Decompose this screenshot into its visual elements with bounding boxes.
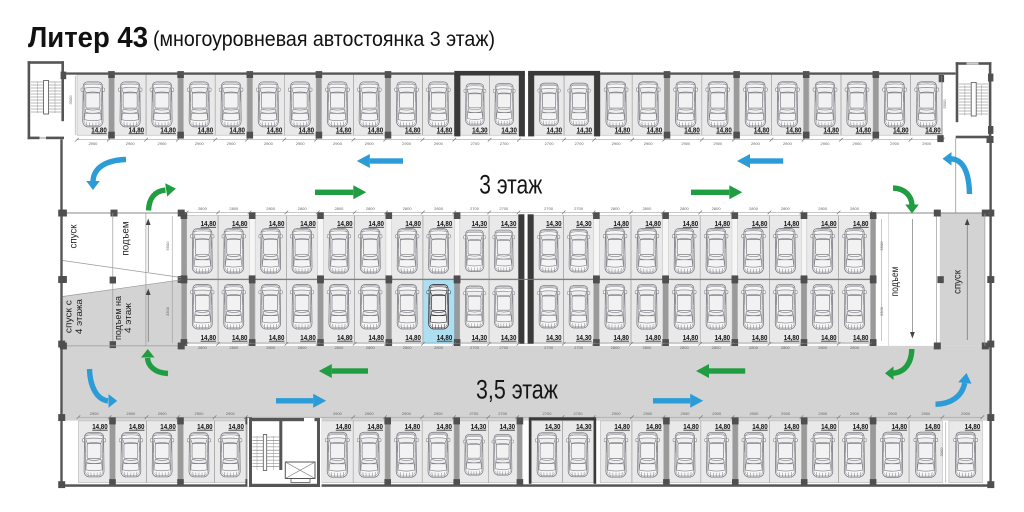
svg-text:14,30: 14,30	[576, 219, 592, 228]
svg-text:2900: 2900	[713, 141, 723, 146]
svg-text:14,80: 14,80	[368, 422, 384, 431]
svg-text:14,80: 14,80	[337, 333, 353, 342]
svg-text:14,80: 14,80	[405, 219, 421, 228]
svg-text:14,30: 14,30	[501, 125, 517, 134]
svg-text:2800: 2800	[818, 345, 828, 350]
svg-text:14,30: 14,30	[472, 219, 488, 228]
svg-text:2700: 2700	[471, 141, 481, 146]
svg-text:14,80: 14,80	[752, 219, 768, 228]
svg-text:2800: 2800	[611, 206, 621, 211]
svg-text:14,80: 14,80	[437, 219, 453, 228]
svg-text:2900: 2900	[333, 411, 343, 416]
svg-text:2900: 2900	[749, 411, 759, 416]
svg-text:14,30: 14,30	[547, 125, 563, 134]
svg-text:14,30: 14,30	[472, 333, 488, 342]
svg-text:14,80: 14,80	[92, 422, 108, 431]
svg-text:14,80: 14,80	[821, 219, 837, 228]
svg-text:2800: 2800	[403, 206, 413, 211]
svg-text:14,80: 14,80	[437, 333, 453, 342]
svg-text:14,30: 14,30	[501, 219, 517, 228]
svg-text:3000: 3000	[68, 95, 73, 105]
svg-text:14,30: 14,30	[546, 333, 562, 342]
svg-text:2800: 2800	[266, 345, 276, 350]
svg-text:2900: 2900	[818, 411, 828, 416]
svg-text:Литер 43: Литер 43	[28, 22, 148, 54]
svg-text:2900: 2900	[195, 141, 205, 146]
svg-text:14,80: 14,80	[269, 333, 285, 342]
svg-text:14,80: 14,80	[853, 219, 869, 228]
svg-text:2900: 2900	[643, 411, 653, 416]
svg-text:2800: 2800	[334, 206, 344, 211]
svg-text:3300: 3300	[165, 306, 170, 316]
svg-text:спуск: спуск	[69, 224, 80, 249]
svg-text:2800: 2800	[680, 206, 690, 211]
svg-text:5500: 5500	[165, 241, 170, 251]
svg-text:14,80: 14,80	[925, 422, 941, 431]
svg-text:2800: 2800	[850, 206, 860, 211]
svg-text:2900: 2900	[612, 411, 622, 416]
svg-text:14,80: 14,80	[784, 219, 800, 228]
svg-text:2700: 2700	[575, 141, 585, 146]
svg-text:14,80: 14,80	[405, 333, 421, 342]
svg-text:2700: 2700	[545, 141, 555, 146]
svg-text:14,80: 14,80	[965, 422, 981, 431]
svg-text:2900: 2900	[158, 411, 168, 416]
svg-text:подъем на: подъем на	[113, 295, 124, 340]
svg-text:14,80: 14,80	[853, 422, 869, 431]
svg-text:2800: 2800	[229, 206, 239, 211]
svg-text:14,80: 14,80	[160, 422, 176, 431]
svg-text:2900: 2900	[126, 141, 136, 146]
svg-text:4 этаж: 4 этаж	[123, 302, 134, 333]
svg-text:2800: 2800	[642, 206, 652, 211]
svg-text:2800: 2800	[298, 206, 308, 211]
svg-text:2900: 2900	[922, 141, 932, 146]
svg-text:14,80: 14,80	[300, 333, 316, 342]
svg-text:2900: 2900	[781, 411, 791, 416]
svg-text:14,80: 14,80	[784, 333, 800, 342]
svg-text:2900: 2900	[195, 411, 205, 416]
svg-text:2800: 2800	[749, 345, 759, 350]
svg-text:14,80: 14,80	[715, 422, 731, 431]
svg-text:2900: 2900	[921, 411, 931, 416]
svg-text:2800: 2800	[434, 345, 444, 350]
svg-text:2700: 2700	[544, 345, 554, 350]
svg-text:2900: 2900	[296, 141, 306, 146]
svg-text:14,80: 14,80	[405, 422, 421, 431]
svg-text:2700: 2700	[499, 206, 509, 211]
svg-text:2900: 2900	[783, 141, 793, 146]
svg-text:2800: 2800	[680, 345, 690, 350]
svg-text:14,30: 14,30	[472, 125, 488, 134]
svg-text:14,80: 14,80	[752, 422, 768, 431]
svg-text:3 этаж: 3 этаж	[479, 170, 542, 200]
svg-text:2900: 2900	[365, 141, 375, 146]
svg-text:2900: 2900	[88, 141, 98, 146]
svg-text:14,30: 14,30	[577, 125, 593, 134]
svg-text:14,30: 14,30	[471, 422, 487, 431]
svg-text:2700: 2700	[499, 345, 509, 350]
svg-text:2800: 2800	[366, 206, 376, 211]
svg-text:2700: 2700	[574, 411, 584, 416]
svg-text:14,30: 14,30	[576, 422, 592, 431]
svg-text:14,30: 14,30	[576, 333, 592, 342]
svg-text:2900: 2900	[850, 411, 860, 416]
svg-text:2700: 2700	[498, 411, 508, 416]
svg-text:14,80: 14,80	[336, 422, 352, 431]
svg-text:14,80: 14,80	[232, 333, 248, 342]
svg-text:2900: 2900	[126, 411, 136, 416]
svg-text:2700: 2700	[574, 206, 584, 211]
svg-text:2800: 2800	[712, 206, 722, 211]
svg-text:14,80: 14,80	[614, 219, 630, 228]
svg-text:2800: 2800	[403, 345, 413, 350]
svg-text:14,80: 14,80	[821, 333, 837, 342]
svg-text:14,30: 14,30	[501, 333, 517, 342]
svg-text:14,80: 14,80	[645, 333, 661, 342]
svg-text:2800: 2800	[611, 345, 621, 350]
svg-text:3000: 3000	[939, 447, 944, 457]
svg-text:2900: 2900	[890, 141, 900, 146]
svg-text:2700: 2700	[544, 206, 554, 211]
svg-text:14,80: 14,80	[752, 333, 768, 342]
svg-text:2800: 2800	[781, 345, 791, 350]
svg-text:5500: 5500	[879, 241, 884, 251]
svg-text:14,80: 14,80	[337, 219, 353, 228]
svg-text:2800: 2800	[366, 345, 376, 350]
svg-text:14,80: 14,80	[228, 422, 244, 431]
svg-text:2900: 2900	[333, 141, 343, 146]
svg-text:14,80: 14,80	[197, 422, 213, 431]
svg-text:14,80: 14,80	[201, 219, 217, 228]
svg-text:2800: 2800	[198, 345, 208, 350]
svg-text:14,80: 14,80	[715, 219, 731, 228]
svg-text:14,30: 14,30	[546, 219, 562, 228]
svg-text:2800: 2800	[642, 345, 652, 350]
svg-text:2800: 2800	[229, 345, 239, 350]
svg-text:2900: 2900	[90, 411, 100, 416]
svg-text:2900: 2900	[821, 141, 831, 146]
svg-text:14,80: 14,80	[715, 333, 731, 342]
svg-text:2900: 2900	[402, 411, 412, 416]
svg-text:2700: 2700	[470, 345, 480, 350]
svg-text:2900: 2900	[226, 411, 236, 416]
svg-text:2700: 2700	[500, 141, 510, 146]
svg-text:2700: 2700	[470, 206, 480, 211]
svg-text:2900: 2900	[612, 141, 622, 146]
svg-text:14,30: 14,30	[545, 422, 561, 431]
svg-text:2800: 2800	[198, 206, 208, 211]
svg-text:2800: 2800	[434, 206, 444, 211]
svg-text:2900: 2900	[961, 411, 971, 416]
svg-text:2800: 2800	[298, 345, 308, 350]
svg-text:5500: 5500	[942, 99, 947, 109]
svg-text:2800: 2800	[266, 206, 276, 211]
svg-text:14,80: 14,80	[614, 422, 630, 431]
svg-text:14,80: 14,80	[614, 333, 630, 342]
svg-text:4 этажа: 4 этажа	[74, 298, 85, 334]
svg-text:2900: 2900	[712, 411, 722, 416]
svg-text:2900: 2900	[365, 411, 375, 416]
svg-text:2900: 2900	[751, 141, 761, 146]
svg-text:спуск с: спуск с	[64, 300, 75, 333]
svg-text:2800: 2800	[781, 206, 791, 211]
svg-text:2800: 2800	[850, 345, 860, 350]
svg-text:2900: 2900	[853, 141, 863, 146]
svg-text:14,80: 14,80	[300, 219, 316, 228]
svg-text:2900: 2900	[227, 141, 237, 146]
svg-text:14,80: 14,80	[646, 422, 662, 431]
svg-text:2700: 2700	[543, 411, 553, 416]
svg-text:14,80: 14,80	[201, 333, 217, 342]
svg-text:2900: 2900	[434, 141, 444, 146]
svg-text:2900: 2900	[888, 411, 898, 416]
svg-text:2900: 2900	[264, 141, 274, 146]
svg-text:2700: 2700	[574, 345, 584, 350]
svg-text:2700: 2700	[469, 411, 479, 416]
svg-text:14,80: 14,80	[437, 422, 453, 431]
svg-text:2800: 2800	[334, 345, 344, 350]
svg-text:подъем: подъем	[890, 266, 901, 296]
svg-text:2800: 2800	[749, 206, 759, 211]
svg-text:14,80: 14,80	[232, 219, 248, 228]
svg-text:подъем: подъем	[121, 221, 132, 255]
svg-text:14,80: 14,80	[683, 422, 699, 431]
svg-text:14,80: 14,80	[645, 219, 661, 228]
svg-text:14,80: 14,80	[683, 219, 699, 228]
svg-text:14,80: 14,80	[129, 422, 145, 431]
svg-text:14,80: 14,80	[821, 422, 837, 431]
svg-text:14,80: 14,80	[369, 219, 385, 228]
svg-text:2900: 2900	[434, 411, 444, 416]
svg-text:14,80: 14,80	[269, 219, 285, 228]
svg-text:14,80: 14,80	[369, 333, 385, 342]
svg-text:2900: 2900	[402, 141, 412, 146]
svg-text:спуск: спуск	[953, 269, 964, 294]
svg-text:14,80: 14,80	[683, 333, 699, 342]
svg-text:14,30: 14,30	[500, 422, 516, 431]
svg-text:(многоуровневая автостоянка 3: (многоуровневая автостоянка 3 этаж)	[153, 28, 495, 51]
svg-text:3,5 этаж: 3,5 этаж	[476, 375, 558, 405]
svg-text:2900: 2900	[681, 411, 691, 416]
svg-text:2800: 2800	[712, 345, 722, 350]
svg-text:14,80: 14,80	[853, 333, 869, 342]
svg-text:3300: 3300	[879, 306, 884, 316]
svg-text:2900: 2900	[644, 141, 654, 146]
svg-text:2900: 2900	[681, 141, 691, 146]
svg-text:14,80: 14,80	[892, 422, 908, 431]
svg-text:2800: 2800	[818, 206, 828, 211]
svg-text:2900: 2900	[158, 141, 168, 146]
svg-text:14,80: 14,80	[784, 422, 800, 431]
